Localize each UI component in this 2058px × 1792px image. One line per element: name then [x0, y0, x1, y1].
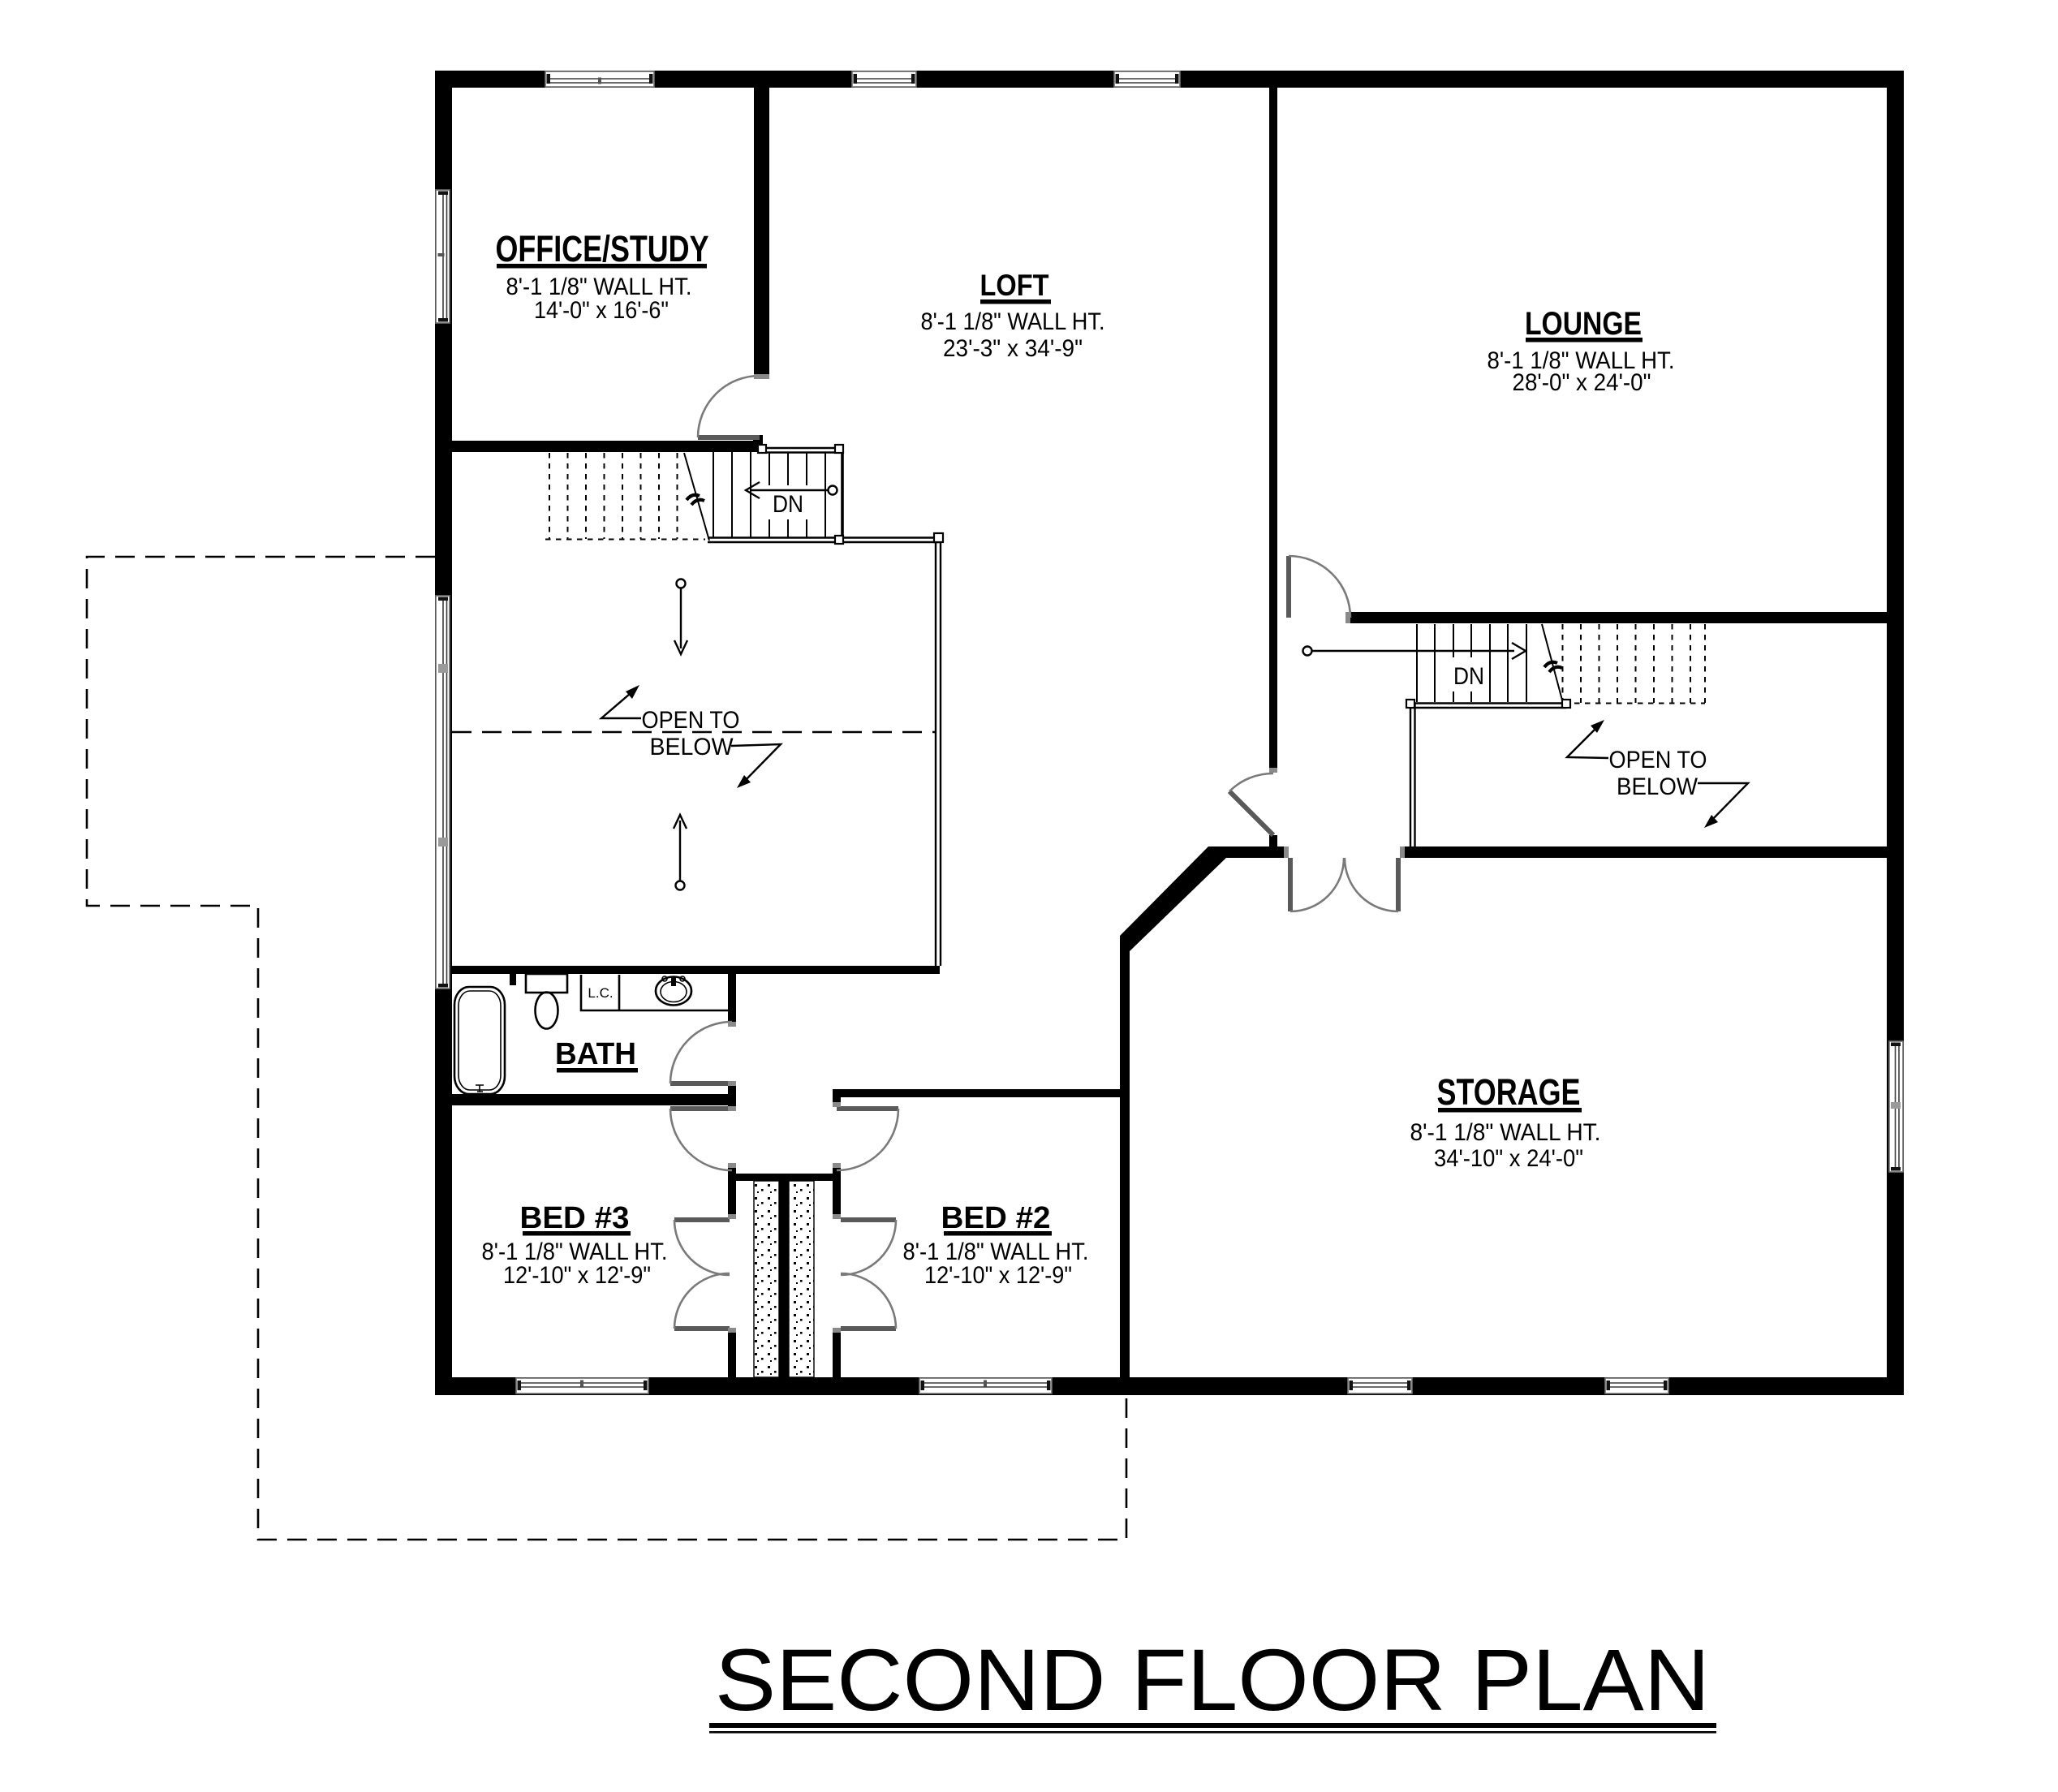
svg-text:DN: DN [1453, 663, 1484, 690]
svg-text:STORAGE: STORAGE [1437, 1071, 1581, 1113]
svg-text:DN: DN [773, 491, 803, 518]
svg-text:12'-10" x 12'-9": 12'-10" x 12'-9" [924, 1262, 1072, 1289]
svg-text:8'-1 1/8" WALL HT.: 8'-1 1/8" WALL HT. [921, 308, 1105, 335]
svg-text:OPEN TO: OPEN TO [642, 707, 740, 734]
svg-text:BATH: BATH [555, 1037, 636, 1071]
svg-text:34'-10" x 24'-0": 34'-10" x 24'-0" [1434, 1145, 1583, 1172]
svg-text:SECOND FLOOR PLAN: SECOND FLOOR PLAN [715, 1630, 1710, 1729]
svg-text:BELOW: BELOW [1617, 773, 1698, 800]
svg-text:BED #3: BED #3 [520, 1201, 630, 1235]
svg-text:LOUNGE: LOUNGE [1525, 306, 1642, 342]
svg-text:LOFT: LOFT [980, 269, 1049, 302]
svg-text:12'-10" x 12'-9": 12'-10" x 12'-9" [503, 1262, 651, 1289]
svg-text:OPEN TO: OPEN TO [1609, 747, 1707, 773]
svg-text:14'-0" x 16'-6": 14'-0" x 16'-6" [534, 297, 669, 324]
svg-text:BED #2: BED #2 [941, 1201, 1051, 1235]
svg-text:OFFICE/STUDY: OFFICE/STUDY [496, 228, 709, 269]
svg-text:8'-1 1/8" WALL HT.: 8'-1 1/8" WALL HT. [1410, 1119, 1601, 1146]
svg-text:BELOW: BELOW [650, 734, 734, 760]
svg-text:23'-3" x 34'-9": 23'-3" x 34'-9" [943, 335, 1083, 362]
svg-text:L.C.: L.C. [588, 985, 613, 1001]
svg-text:28'-0" x 24'-0": 28'-0" x 24'-0" [1513, 369, 1651, 396]
